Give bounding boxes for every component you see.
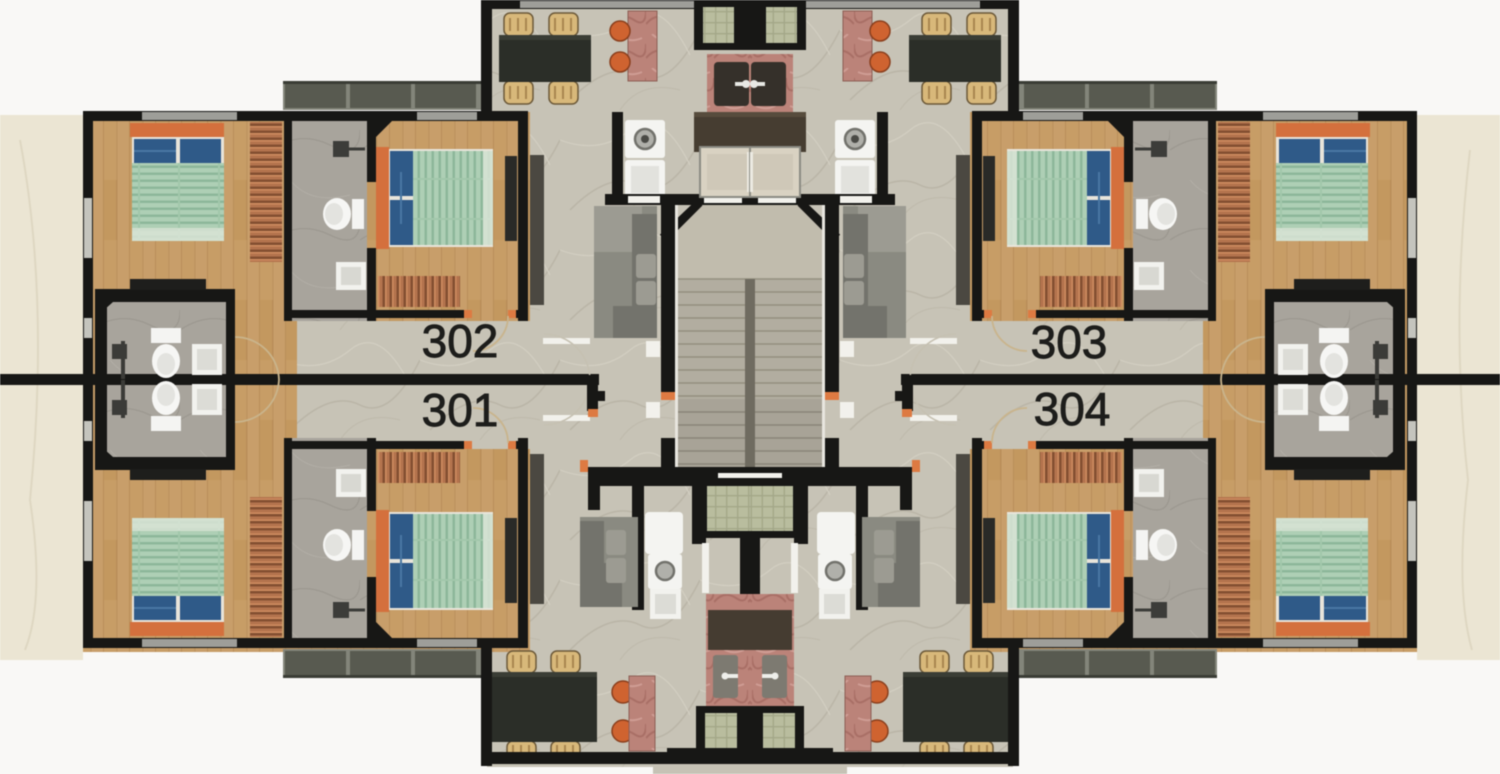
svg-text:301: 301 [422, 384, 499, 436]
svg-text:304: 304 [1034, 383, 1111, 435]
svg-text:302: 302 [422, 315, 499, 367]
svg-text:303: 303 [1031, 316, 1108, 368]
